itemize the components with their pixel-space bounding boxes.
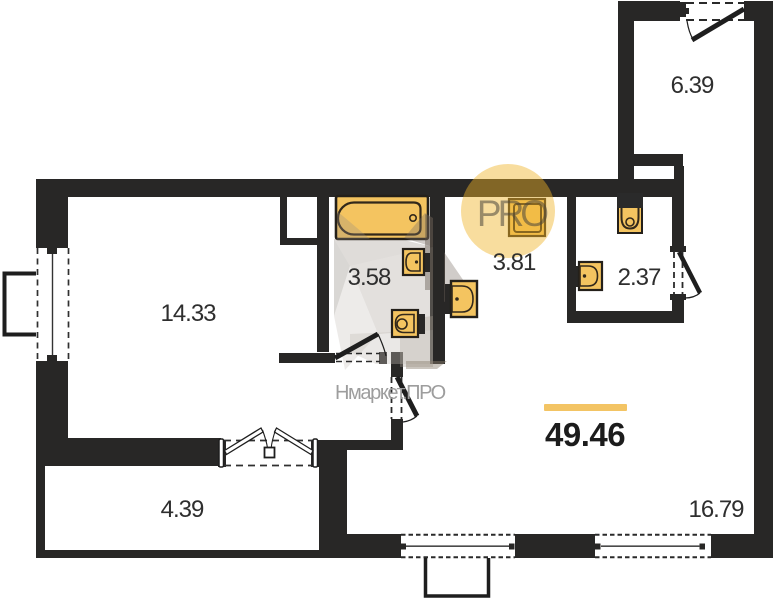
svg-text:49.46: 49.46 (545, 416, 625, 453)
svg-text:14.33: 14.33 (160, 300, 216, 327)
svg-text:4.39: 4.39 (161, 496, 204, 523)
svg-text:16.79: 16.79 (688, 496, 744, 523)
svg-text:2.37: 2.37 (618, 264, 661, 291)
svg-text:3.81: 3.81 (493, 249, 536, 276)
svg-text:3.58: 3.58 (348, 264, 391, 291)
svg-text:PRO: PRO (477, 193, 548, 234)
svg-text:Нмаркет.ПРО: Нмаркет.ПРО (335, 382, 446, 404)
svg-text:6.39: 6.39 (671, 72, 714, 99)
